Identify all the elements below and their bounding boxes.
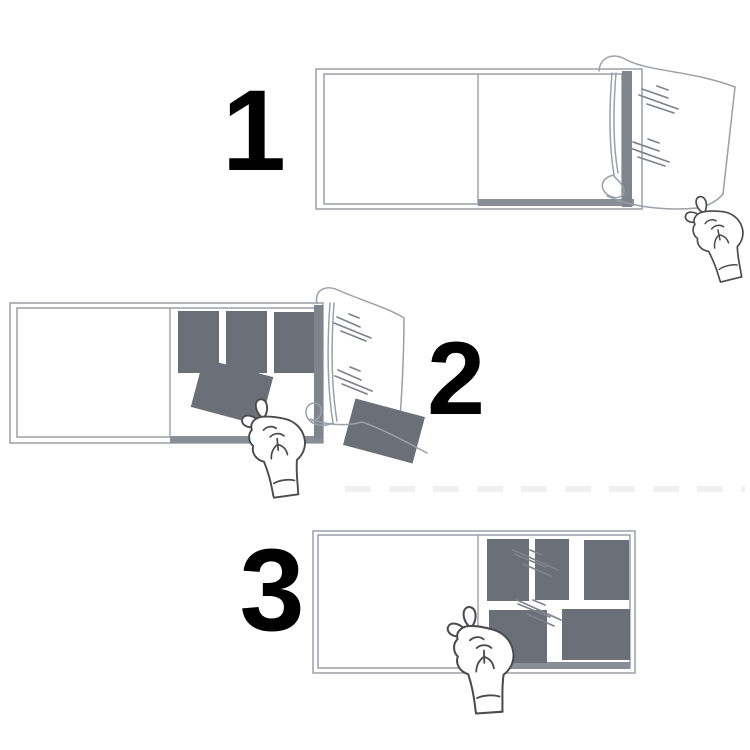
instruction-diagram: 1 2 3	[0, 0, 750, 750]
hand-pinching-film-1	[681, 189, 750, 287]
photo-4	[487, 539, 529, 601]
photo-2	[226, 311, 267, 373]
illustration-svg	[0, 0, 750, 750]
photo-3	[274, 312, 316, 373]
step-1-number: 1	[198, 74, 308, 189]
step-3-illustration	[313, 531, 635, 715]
film-shine-marks-2b	[335, 367, 372, 394]
faint-artifact-band	[345, 486, 745, 492]
album-right-edge-2	[314, 305, 323, 439]
step-3-number: 3	[216, 531, 326, 648]
album-pages-1	[324, 74, 622, 204]
film-shine-marks-2a	[334, 314, 371, 341]
photo-5	[535, 539, 569, 600]
photo-8	[562, 609, 630, 660]
film-shine-marks-1a	[639, 86, 678, 113]
step-1-illustration	[316, 56, 750, 287]
album-bottom-edge-1	[478, 199, 634, 206]
step-2-illustration	[10, 288, 427, 501]
photo-6	[584, 540, 629, 600]
step-2-number: 2	[400, 327, 510, 431]
